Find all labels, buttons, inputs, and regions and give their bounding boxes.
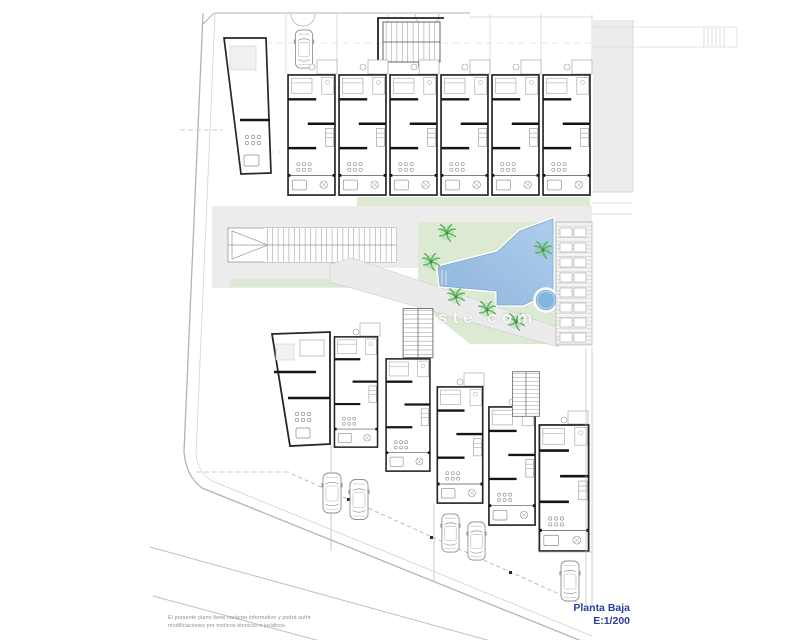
sidewalk-strip <box>593 20 633 192</box>
plan-scale: E:1/200 <box>528 615 630 628</box>
staircase-icon <box>403 308 433 357</box>
parked-car-icon <box>559 561 580 601</box>
staircase-icon <box>512 372 539 417</box>
jacuzzi <box>535 289 558 312</box>
apartment-unit <box>288 75 336 195</box>
parked-car-icon <box>294 30 314 68</box>
apartment-unit <box>539 425 589 551</box>
apartment-unit <box>334 337 378 447</box>
entrance-porches <box>309 60 592 74</box>
disclaimer-line: El presente plano tiene carácter informa… <box>168 615 320 623</box>
bottom-building-block <box>196 308 592 608</box>
garage-ramp <box>228 228 396 262</box>
site-plan: ste.com El presente plano tiene carácter… <box>0 0 800 640</box>
disclaimer-line: modificaciones por motivos técnicos o ju… <box>168 623 320 631</box>
parked-car-icon <box>348 480 369 520</box>
parked-car-icon <box>321 473 342 513</box>
right-road-area <box>592 20 737 214</box>
apartment-unit <box>492 75 540 195</box>
green-strip <box>357 197 590 206</box>
parked-car-icon <box>466 522 486 560</box>
top-building-block <box>180 14 592 195</box>
plan-title: Planta Baja <box>528 602 630 615</box>
title-block: Planta Baja E:1/200 <box>528 602 630 628</box>
apartment-unit <box>386 359 431 471</box>
parked-car-icon <box>440 514 460 552</box>
apartment-unit <box>488 407 535 525</box>
walkway-top <box>212 206 592 222</box>
floor-plan-drawing <box>0 0 800 640</box>
disclaimer: El presente plano tiene carácter informa… <box>168 615 320 630</box>
apartment-unit <box>543 75 591 195</box>
apartment-unit <box>272 332 330 446</box>
apartment-unit <box>390 75 438 195</box>
apartment-unit <box>339 75 387 195</box>
apartment-unit <box>441 75 489 195</box>
pergola-sunbed-area <box>556 222 592 345</box>
crosswalk <box>704 28 724 47</box>
staircase-icon <box>378 18 444 62</box>
apartment-unit <box>224 38 271 174</box>
garage-door-arc <box>291 14 315 26</box>
apartment-unit <box>437 387 483 503</box>
